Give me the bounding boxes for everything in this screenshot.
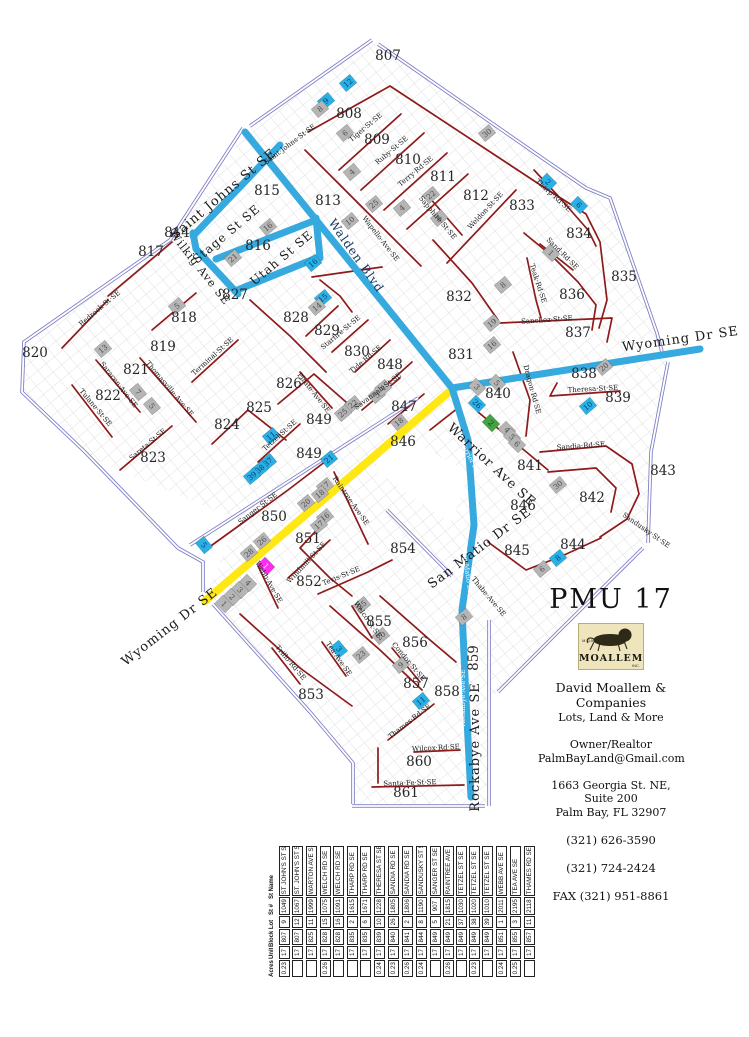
phone-number-1: (321) 626-3590 <box>538 833 684 847</box>
block-number: 818 <box>171 310 197 326</box>
block-number: 842 <box>579 490 605 506</box>
logo-inc: INC. <box>632 663 640 668</box>
table-cell: 2195 <box>510 897 521 914</box>
table-row: 0.2317849381020TETZEL ST SE <box>469 845 480 977</box>
table-cell: 16 <box>333 916 344 928</box>
table-row: 0.241785112011WEBB AVE SE <box>496 845 507 977</box>
table-cell: 11 <box>524 916 535 928</box>
table-row: 0.2617849211815RAINTREE AVE SE <box>443 845 454 977</box>
table-cell: SANDIA RD SE <box>388 846 399 896</box>
table-cell: 849 <box>456 929 467 946</box>
table-cell: 8 <box>416 916 427 928</box>
table-cell <box>456 960 467 977</box>
table-cell: 0.26 <box>443 960 454 977</box>
street-label: Rockabye·Ave·SE <box>459 669 467 726</box>
table-cell: THARP RD SE <box>360 846 371 896</box>
block-number: 839 <box>605 390 631 406</box>
listing-table-rotated: AcresUnitBlockLotSt #St Name0.2317807910… <box>268 845 540 977</box>
table-cell: 17 <box>388 946 399 958</box>
table-cell: 17 <box>306 946 317 958</box>
table-cell: 6 <box>360 916 371 928</box>
lion-icon <box>580 626 642 652</box>
table-row: 0.2317840261805SANDIA RD SE <box>388 845 399 977</box>
table-cell: 807 <box>292 929 303 946</box>
plat-map-page: 1298642542210162116155143062618191620351… <box>0 0 749 1037</box>
table-cell <box>524 960 535 977</box>
table-cell: 5 <box>430 916 441 928</box>
table-cell: 840 <box>388 929 399 946</box>
table-cell <box>430 960 441 977</box>
table-row: 1783521615THARP RD SE <box>347 845 358 977</box>
table-cell: 17 <box>347 946 358 958</box>
listing-table: AcresUnitBlockLotSt #St Name0.2317807910… <box>268 845 540 977</box>
table-cell: 0.23 <box>279 960 290 977</box>
block-number: 819 <box>150 339 176 355</box>
table-cell: 1228 <box>374 897 385 914</box>
table-cell: 15 <box>320 916 331 928</box>
block-number: 853 <box>298 687 324 703</box>
table-cell: 0.23 <box>469 960 480 977</box>
page-title: PMU 17 <box>538 584 684 615</box>
table-cell: 3 <box>510 916 521 928</box>
table-row: 17857112118THAMES RD SE <box>524 845 535 977</box>
table-cell: 17 <box>320 946 331 958</box>
table-header-cell: St # <box>268 901 277 918</box>
table-cell <box>306 960 317 977</box>
table-cell: THAMES RD SE <box>524 846 535 896</box>
table-header-cell: St Name <box>268 847 277 900</box>
block-number: 833 <box>509 198 535 214</box>
table-row: 17807121067ST. JOHN'S ST SE <box>292 845 303 977</box>
table-cell: 17 <box>416 946 427 958</box>
owner-role: Owner/Realtor <box>538 738 684 751</box>
table-cell: 1805 <box>388 897 399 914</box>
table-cell: 39 <box>482 916 493 928</box>
block-number: 812 <box>463 188 489 204</box>
table-row: 17849371030TETZEL ST SE <box>456 845 467 977</box>
block-number: 852 <box>296 574 322 590</box>
block-number: 834 <box>566 226 592 242</box>
block-number: 832 <box>446 289 472 305</box>
moallem-logo: M. DAVID MOALLEM INC. <box>578 623 644 670</box>
block-number: 836 <box>559 287 585 303</box>
table-header-cell: Block <box>268 931 277 947</box>
block-number: 816 <box>245 238 271 254</box>
table-cell: 9 <box>279 916 290 928</box>
table-cell: SANGER ST SE <box>430 846 441 896</box>
table-row: 0.251785532195TEA AVE SE <box>510 845 521 977</box>
block-number: 860 <box>406 754 432 770</box>
table-row: 17825111999WARTON AVE SE <box>306 845 317 977</box>
table-cell: 1020 <box>469 897 480 914</box>
cyan-road <box>316 218 320 258</box>
table-cell: 841 <box>402 929 413 946</box>
table-cell: 37 <box>456 916 467 928</box>
table-cell: 1190 <box>416 897 427 914</box>
table-cell: 835 <box>347 929 358 946</box>
block-number: 808 <box>336 106 362 122</box>
table-cell: 17 <box>524 946 535 958</box>
table-cell: 2118 <box>524 897 535 914</box>
table-cell <box>292 960 303 977</box>
table-cell: 844 <box>416 929 427 946</box>
table-cell: 857 <box>524 929 535 946</box>
table-header-cell: Unit <box>268 948 277 959</box>
table-cell <box>482 960 493 977</box>
street-address: 1663 Georgia St. NE, Suite 200 <box>538 779 684 805</box>
table-cell: 0.23 <box>388 960 399 977</box>
table-cell: 11 <box>306 916 317 928</box>
block-number: 858 <box>434 684 460 700</box>
block-number: 813 <box>315 193 341 209</box>
block-number: 817 <box>138 244 164 260</box>
street-label: Wyoming Dr SE <box>119 585 221 669</box>
table-cell: 828 <box>320 929 331 946</box>
table-cell: 17 <box>469 946 480 958</box>
table-cell: 1067 <box>292 897 303 914</box>
block-number: 820 <box>22 345 48 361</box>
table-cell: WELCH RD SE <box>333 846 344 896</box>
table-cell: 17 <box>456 946 467 958</box>
table-cell: 1 <box>496 916 507 928</box>
table-cell: 17 <box>292 946 303 958</box>
city-state-zip: Palm Bay, FL 32907 <box>538 806 684 819</box>
block-number: 840 <box>485 386 511 402</box>
table-row: 0.2617828151075WELCH RD SE <box>320 845 331 977</box>
table-cell: 2011 <box>496 897 507 914</box>
table-cell: ST. JOHN'S ST SE <box>292 846 303 896</box>
table-row: 178495907SANGER ST SE <box>430 845 441 977</box>
table-row: 0.261784121806SANDIA RD SE <box>402 845 413 977</box>
table-cell: 849 <box>482 929 493 946</box>
table-cell: 26 <box>388 916 399 928</box>
block-number: 849 <box>306 412 332 428</box>
table-cell: 907 <box>430 897 441 914</box>
block-number: 841 <box>517 458 543 474</box>
table-cell: THARP RD SE <box>347 846 358 896</box>
table-cell: TETZEL ST SE <box>469 846 480 896</box>
table-cell: 1999 <box>306 897 317 914</box>
table-cell: 825 <box>306 929 317 946</box>
block-number: 822 <box>95 388 121 404</box>
table-header-row: AcresUnitBlockLotSt #St Name <box>268 845 277 977</box>
table-cell: 0.26 <box>402 960 413 977</box>
table-cell: WEBB AVE SE <box>496 846 507 896</box>
table-cell: 17 <box>360 946 371 958</box>
table-cell: TETZEL ST SE <box>456 846 467 896</box>
table-cell: 2 <box>347 916 358 928</box>
table-cell: 0.24 <box>416 960 427 977</box>
legend-panel: PMU 17 M. DAVID MOALLEM INC. David Moall… <box>538 584 684 917</box>
table-cell: WELCH RD SE <box>320 846 331 896</box>
block-number: 825 <box>246 400 272 416</box>
table-row: 0.2417839101228THERESA ST SE <box>374 845 385 977</box>
table-cell: 0.24 <box>374 960 385 977</box>
table-cell: 10 <box>374 916 385 928</box>
table-cell: 17 <box>496 946 507 958</box>
block-number: 843 <box>650 463 676 479</box>
block-number: 838 <box>571 366 597 382</box>
fax-number: FAX (321) 951-8861 <box>538 889 684 903</box>
table-cell: 0.26 <box>320 960 331 977</box>
block-number: 849 <box>296 446 322 462</box>
table-cell: 17 <box>482 946 493 958</box>
block-number: 835 <box>611 269 637 285</box>
table-cell: 1815 <box>443 897 454 914</box>
block-number: 848 <box>377 357 403 373</box>
block-number: 856 <box>402 635 428 651</box>
table-cell: 1091 <box>333 897 344 914</box>
table-header-cell: Lot <box>268 919 277 930</box>
table-cell: TETZEL ST SE <box>482 846 493 896</box>
block-number: 847 <box>391 399 417 415</box>
block-number: 828 <box>283 310 309 326</box>
table-cell: 828 <box>333 929 344 946</box>
block-number: 859 <box>466 645 482 671</box>
block-number: 854 <box>390 541 416 557</box>
table-cell: 17 <box>279 946 290 958</box>
block-number: 845 <box>504 543 530 559</box>
table-cell: 17 <box>402 946 413 958</box>
table-cell: RAINTREE AVE SE <box>443 846 454 896</box>
block-number: 807 <box>375 48 401 64</box>
table-cell <box>333 960 344 977</box>
table-row: 0.231780791049ST JOHN'S ST SE <box>279 845 290 977</box>
table-cell: 1030 <box>456 897 467 914</box>
block-number: 811 <box>430 169 456 185</box>
table-cell: 835 <box>360 929 371 946</box>
block-number: 824 <box>214 417 240 433</box>
table-cell <box>360 960 371 977</box>
table-header-cell: Acres <box>268 960 277 977</box>
table-cell: 839 <box>374 929 385 946</box>
block-number: 809 <box>364 132 390 148</box>
table-cell: 1615 <box>347 897 358 914</box>
table-row: 17849391010TETZEL ST SE <box>482 845 493 977</box>
table-cell: 17 <box>510 946 521 958</box>
company-tagline: Lots, Land & More <box>538 711 684 724</box>
table-row: 1783561671THARP RD SE <box>360 845 371 977</box>
table-cell: 17 <box>333 946 344 958</box>
table-cell: 17 <box>430 946 441 958</box>
table-row: 0.241784481190SANDUSKY ST SE <box>416 845 427 977</box>
block-number: 837 <box>565 325 591 341</box>
table-cell: WARTON AVE SE <box>306 846 317 896</box>
table-cell: 21 <box>443 916 454 928</box>
table-cell: SANDIA RD SE <box>402 846 413 896</box>
table-cell: 17 <box>443 946 454 958</box>
table-cell: 855 <box>510 929 521 946</box>
table-cell: ST JOHN'S ST SE <box>279 846 290 896</box>
table-cell: 1049 <box>279 897 290 914</box>
block-number: 846 <box>390 434 416 450</box>
table-cell: 17 <box>374 946 385 958</box>
phone-number-2: (321) 724-2424 <box>538 861 684 875</box>
table-cell <box>347 960 358 977</box>
table-cell: 1806 <box>402 897 413 914</box>
block-number: 831 <box>448 347 474 363</box>
table-cell: 12 <box>292 916 303 928</box>
table-cell: 849 <box>430 929 441 946</box>
block-number: 815 <box>254 183 280 199</box>
table-cell: 849 <box>443 929 454 946</box>
table-row: 17828161091WELCH RD SE <box>333 845 344 977</box>
company-name: David Moallem & Companies <box>538 680 684 710</box>
table-cell: 807 <box>279 929 290 946</box>
block-number: 850 <box>261 509 287 525</box>
table-cell: 38 <box>469 916 480 928</box>
street-label: Rockabye Ave SE <box>468 682 483 811</box>
table-cell: 1010 <box>482 897 493 914</box>
table-cell: THERESA ST SE <box>374 846 385 896</box>
table-cell: TEA AVE SE <box>510 846 521 896</box>
table-cell: 0.25 <box>510 960 521 977</box>
table-cell: 0.24 <box>496 960 507 977</box>
email-address: PalmBayLand@Gmail.com <box>538 752 684 765</box>
table-cell: 1671 <box>360 897 371 914</box>
block-number: 844 <box>560 537 586 553</box>
table-cell: 2 <box>402 916 413 928</box>
table-cell: 851 <box>496 929 507 946</box>
table-cell: 849 <box>469 929 480 946</box>
table-cell: SANDUSKY ST SE <box>416 846 427 896</box>
table-cell: 1075 <box>320 897 331 914</box>
